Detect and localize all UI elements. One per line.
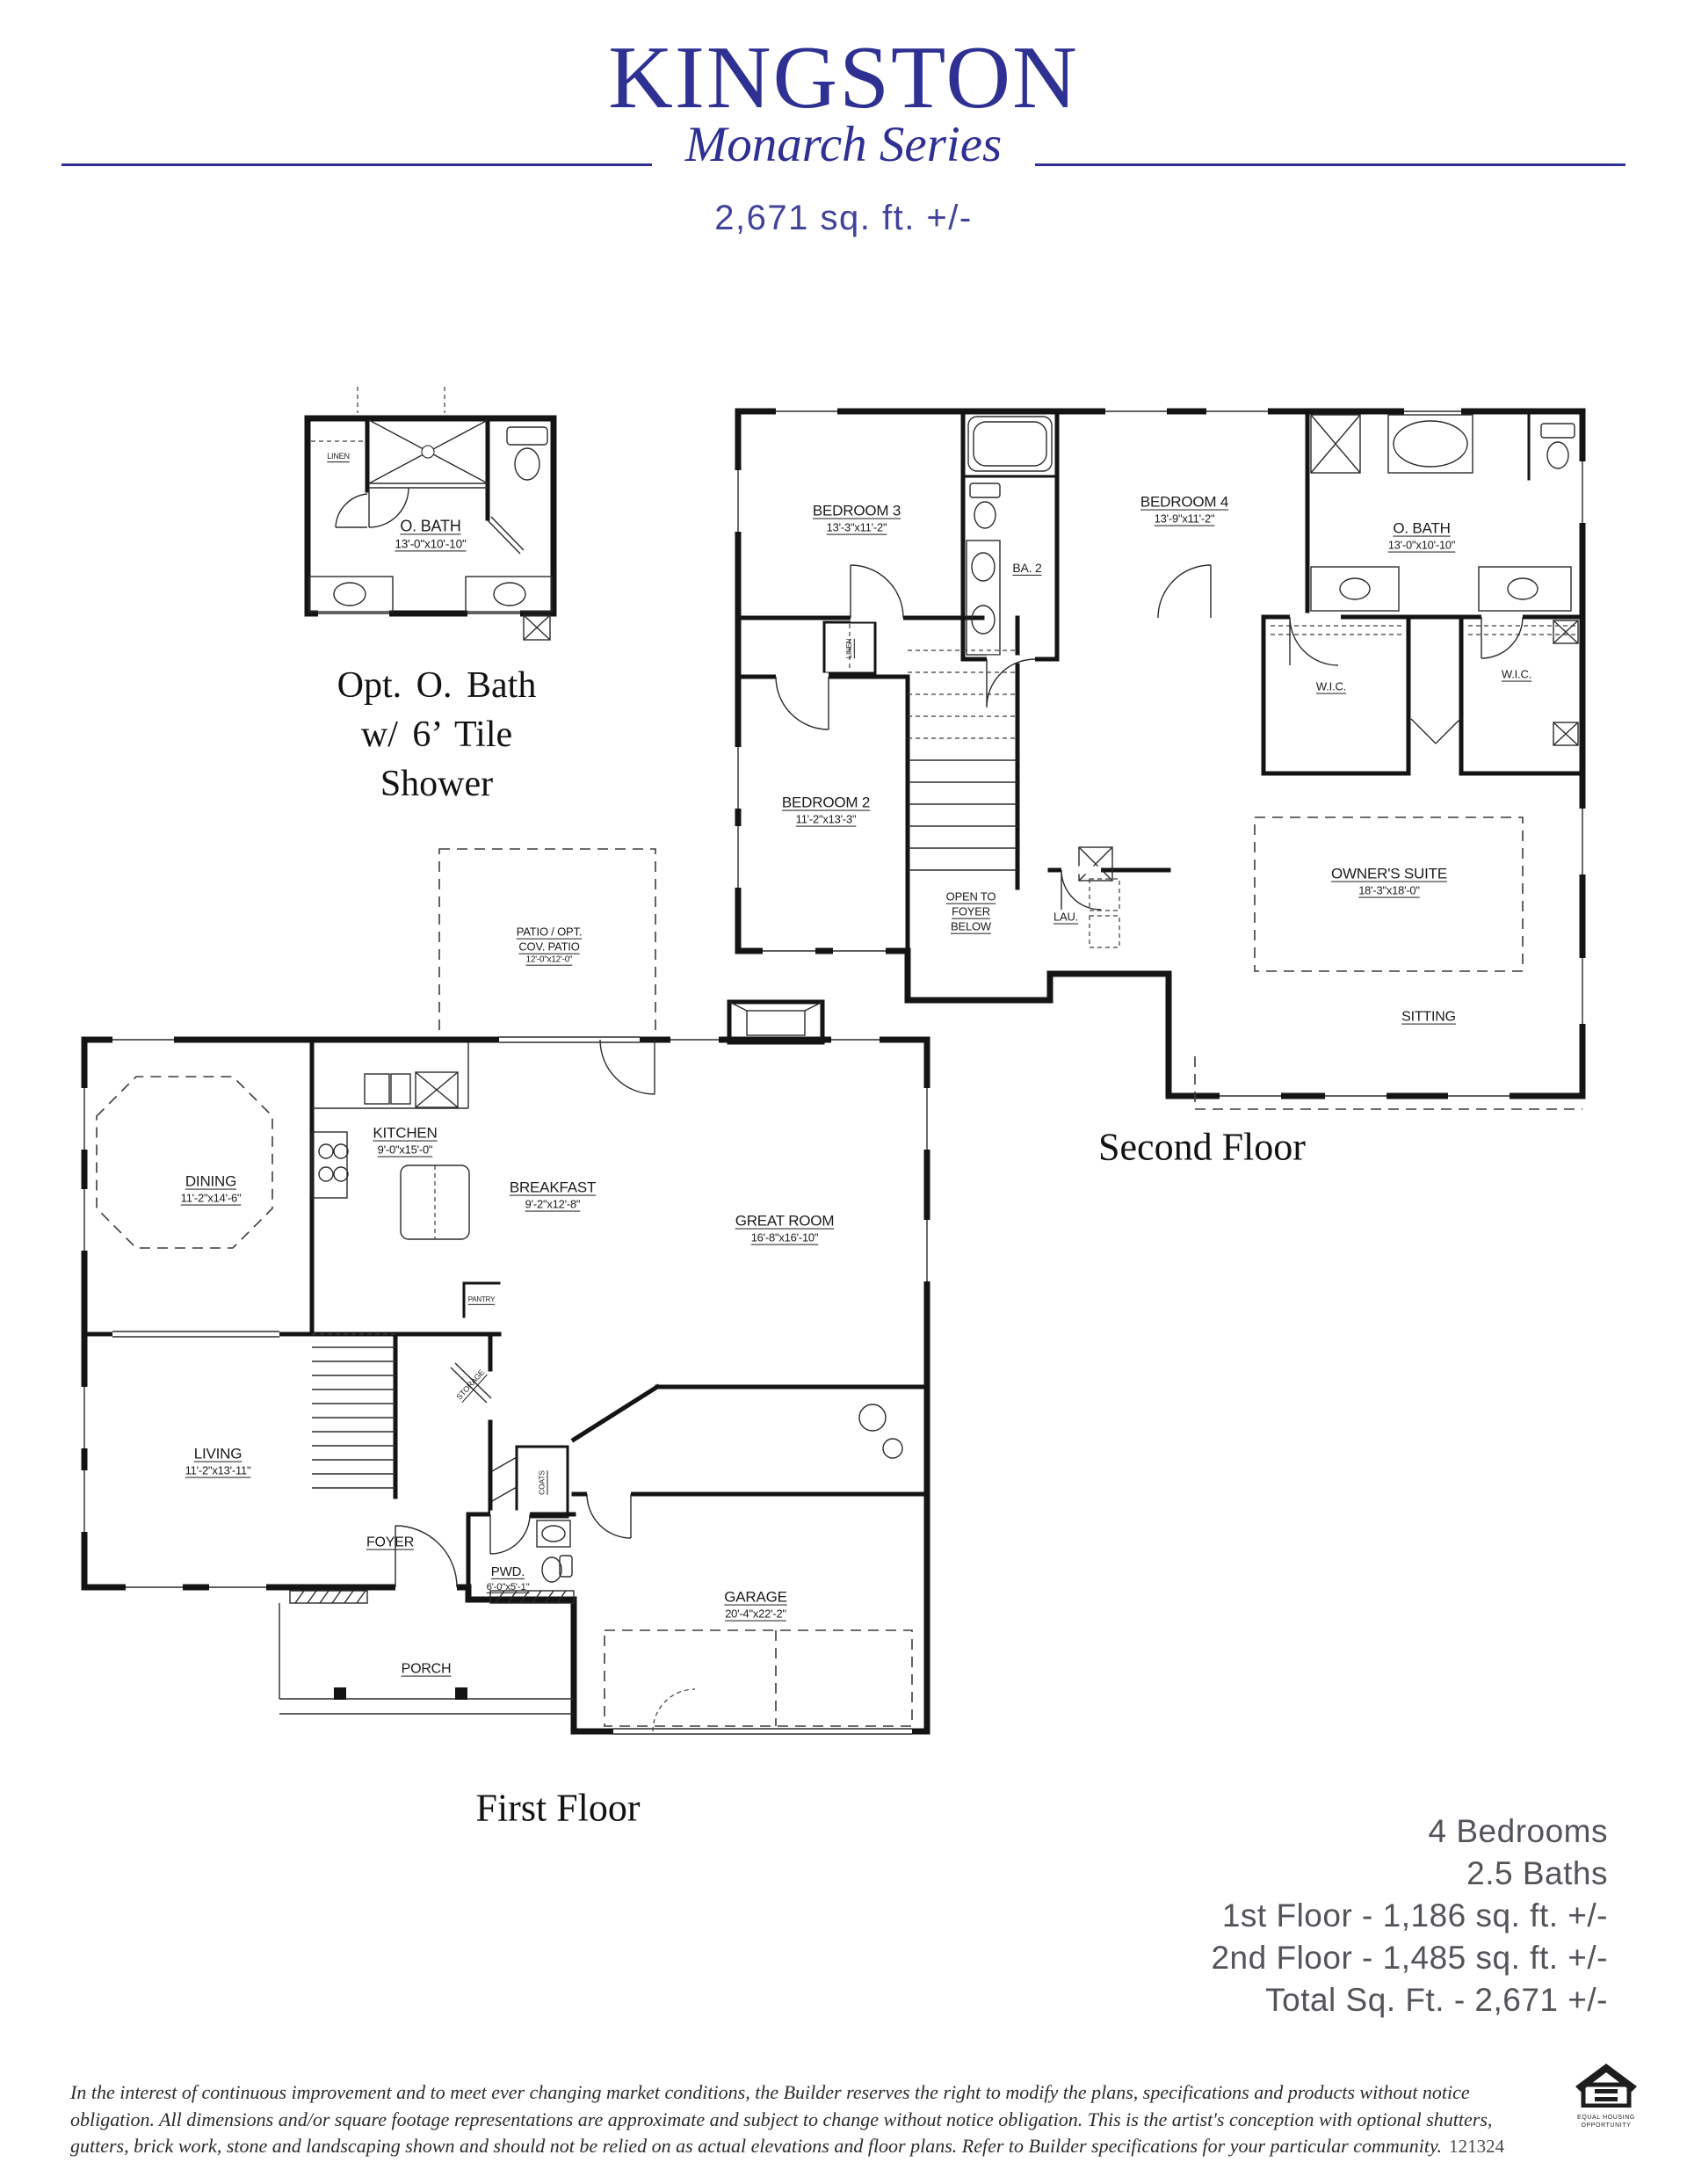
room-dims: 18'-3"x18'-0" bbox=[1331, 884, 1447, 899]
attic-access-box bbox=[1079, 847, 1112, 881]
room-name: BEDROOM 4 bbox=[1140, 493, 1228, 512]
summary-total-sqft: Total Sq. Ft. - 2,671 +/- bbox=[1211, 1979, 1608, 2021]
second-floor-caption: Second Floor bbox=[1098, 1125, 1306, 1170]
tile-shower bbox=[369, 420, 488, 488]
room-dims: 16'-8"x16'-10" bbox=[735, 1231, 835, 1246]
equal-housing-logo: EQUAL HOUSING OPPORTUNITY bbox=[1571, 2062, 1641, 2130]
room-label-owners-suite: OWNER'S SUITE 18'-3"x18'-0" bbox=[1331, 865, 1447, 899]
fireplace bbox=[729, 1002, 822, 1042]
room-label-bedroom-2: BEDROOM 2 11'-2"x13'-3" bbox=[782, 794, 870, 828]
caption-line: Opt. O. Bath bbox=[305, 661, 568, 710]
room-label-linen: LINEN bbox=[845, 639, 854, 659]
room-dims: 20'-4"x22'-2" bbox=[724, 1607, 787, 1622]
room-name: GREAT ROOM bbox=[735, 1212, 835, 1231]
vanities bbox=[309, 577, 552, 612]
caption-line: Shower bbox=[305, 759, 568, 809]
room-dims: 13'-0"x10'-10" bbox=[395, 537, 466, 553]
room-label-powder: PWD. 6'-0"x5'-1" bbox=[487, 1564, 530, 1593]
room-name: PWD. bbox=[487, 1564, 530, 1581]
room-label-open-to-foyer: OPEN TO FOYER BELOW bbox=[946, 890, 996, 935]
room-name: SITTING bbox=[1401, 1009, 1456, 1027]
room-name: PANTRY bbox=[468, 1295, 496, 1304]
room-name: DINING bbox=[181, 1172, 242, 1192]
room-label-linen: LINEN bbox=[327, 452, 350, 462]
patio-slider-door bbox=[499, 1037, 655, 1094]
equal-housing-line1: EQUAL HOUSING bbox=[1571, 2114, 1641, 2122]
room-name: BA. 2 bbox=[1012, 560, 1041, 576]
total-sqft-headline: 2,671 sq. ft. +/- bbox=[0, 199, 1687, 238]
projection-lines bbox=[358, 387, 445, 413]
room-label-wic-left: W.I.C. bbox=[1316, 680, 1346, 695]
porch bbox=[279, 1591, 574, 1714]
toilet bbox=[507, 427, 547, 480]
label-line: OPEN TO bbox=[946, 890, 996, 905]
room-dims: 9'-0"x15'-0" bbox=[373, 1143, 437, 1158]
page-title: KINGSTON bbox=[0, 26, 1687, 129]
room-dims: 11'-2"x13'-11" bbox=[185, 1464, 251, 1479]
room-name: COATS bbox=[537, 1470, 547, 1495]
wic-shelving bbox=[1271, 626, 1576, 635]
roofline-dashed bbox=[1195, 1056, 1582, 1109]
room-label-sitting: SITTING bbox=[1401, 1009, 1456, 1027]
room-label-obath: O. BATH 13'-0"x10'-10" bbox=[395, 516, 466, 552]
room-dims: 12'-0"x12'-0" bbox=[517, 954, 582, 966]
legal-disclaimer: In the interest of continuous improvemen… bbox=[70, 2079, 1533, 2160]
doors bbox=[395, 1494, 695, 1731]
room-dims: 11'-2"x13'-3" bbox=[782, 813, 870, 828]
room-name: OWNER'S SUITE bbox=[1331, 865, 1447, 884]
summary-second-floor-sqft: 2nd Floor - 1,485 sq. ft. +/- bbox=[1211, 1937, 1608, 1979]
room-label-bedroom-4: BEDROOM 4 13'-9"x11'-2" bbox=[1140, 493, 1228, 527]
powder-room-fixtures bbox=[537, 1520, 572, 1582]
room-name: KITCHEN bbox=[373, 1124, 437, 1143]
label-line: FOYER bbox=[946, 905, 996, 920]
label-line: BELOW bbox=[946, 919, 996, 934]
series-subtitle: Monarch Series bbox=[0, 116, 1687, 173]
cased-opening bbox=[112, 1331, 279, 1337]
room-label-bedroom-3: BEDROOM 3 13'-3"x11'-2" bbox=[813, 502, 901, 536]
dining-ceiling-dashed bbox=[97, 1077, 272, 1248]
equal-housing-line2: OPPORTUNITY bbox=[1571, 2122, 1641, 2130]
room-name: LIVING bbox=[185, 1445, 251, 1464]
room-label-patio: PATIO / OPT. COV. PATIO 12'-0"x12'-0" bbox=[517, 925, 582, 967]
room-dims: 9'-2"x12'-8" bbox=[510, 1198, 596, 1213]
room-name: LINEN bbox=[845, 639, 854, 659]
garage-bay-dashed bbox=[605, 1630, 912, 1726]
summary-first-floor-sqft: 1st Floor - 1,186 sq. ft. +/- bbox=[1211, 1895, 1608, 1937]
floorplan-opt-bath: LINEN O. BATH 13'-0"x10'-10" bbox=[299, 387, 562, 650]
room-label-coats: COATS bbox=[537, 1470, 547, 1495]
disclaimer-text: In the interest of continuous improvemen… bbox=[70, 2081, 1492, 2157]
caption-line: w/ 6’ Tile bbox=[305, 710, 568, 759]
room-name: W.I.C. bbox=[1502, 668, 1531, 683]
room-name: PORCH bbox=[402, 1661, 452, 1680]
summary-baths: 2.5 Baths bbox=[1211, 1853, 1608, 1895]
room-label-laundry: LAU. bbox=[1053, 911, 1078, 925]
room-label-ba2: BA. 2 bbox=[1012, 560, 1041, 576]
floorplan-first-floor: PATIO / OPT. COV. PATIO 12'-0"x12'-0" DI… bbox=[77, 842, 934, 1774]
room-label-dining: DINING 11'-2"x14'-6" bbox=[181, 1172, 242, 1207]
laundry-machines bbox=[1090, 879, 1119, 947]
first-floor-caption: First Floor bbox=[475, 1786, 640, 1831]
garage-door-opening bbox=[613, 1729, 912, 1734]
room-dims: 13'-3"x11'-2" bbox=[813, 521, 901, 536]
room-name: W.I.C. bbox=[1316, 680, 1346, 695]
room-name: BEDROOM 2 bbox=[782, 794, 870, 813]
room-label-wic-right: W.I.C. bbox=[1502, 668, 1531, 683]
floorplan-sheet: KINGSTON Monarch Series 2,671 sq. ft. +/… bbox=[0, 0, 1687, 2184]
summary-bedrooms: 4 Bedrooms bbox=[1211, 1810, 1608, 1853]
equal-housing-house-icon bbox=[1572, 2062, 1640, 2108]
interior-walls bbox=[84, 1040, 927, 1587]
windows bbox=[84, 1040, 927, 1587]
room-name: BREAKFAST bbox=[510, 1179, 596, 1198]
equal-housing-text: EQUAL HOUSING OPPORTUNITY bbox=[1571, 2114, 1641, 2130]
plan-summary: 4 Bedrooms 2.5 Baths 1st Floor - 1,186 s… bbox=[1211, 1810, 1608, 2021]
room-name: GARAGE bbox=[724, 1588, 787, 1607]
utility-circles bbox=[859, 1404, 902, 1458]
room-dims: 13'-0"x10'-10" bbox=[1388, 539, 1456, 554]
room-name: O. BATH bbox=[395, 516, 466, 536]
room-name: BEDROOM 3 bbox=[813, 502, 901, 521]
room-label-garage: GARAGE 20'-4"x22'-2" bbox=[724, 1588, 787, 1622]
room-name: O. BATH bbox=[1388, 519, 1456, 539]
room-label-porch: PORCH bbox=[402, 1661, 452, 1680]
room-label-living: LIVING 11'-2"x13'-11" bbox=[185, 1445, 251, 1479]
room-label-breakfast: BREAKFAST 9'-2"x12'-8" bbox=[510, 1179, 596, 1213]
room-name: LINEN bbox=[327, 452, 350, 462]
label-line: COV. PATIO bbox=[517, 940, 582, 955]
chase-box bbox=[524, 615, 550, 640]
coats-closet bbox=[492, 1447, 568, 1517]
room-label-pantry: PANTRY bbox=[468, 1295, 496, 1304]
stairs bbox=[312, 1334, 395, 1488]
room-name: FOYER bbox=[366, 1535, 414, 1553]
room-label-great-room: GREAT ROOM 16'-8"x16'-10" bbox=[735, 1212, 835, 1246]
stairs bbox=[908, 650, 1017, 870]
plan-revision-code: 121324 bbox=[1449, 2136, 1504, 2157]
room-dims: 13'-9"x11'-2" bbox=[1140, 512, 1228, 527]
room-name: LAU. bbox=[1053, 911, 1078, 925]
opt-bath-caption: Opt. O. Bath w/ 6’ Tile Shower bbox=[305, 661, 568, 809]
room-dims: 11'-2"x14'-6" bbox=[181, 1192, 242, 1207]
room-label-owners-bath: O. BATH 13'-0"x10'-10" bbox=[1388, 519, 1456, 554]
room-dims: 6'-0"x5'-1" bbox=[487, 1580, 530, 1593]
room-label-kitchen: KITCHEN 9'-0"x15'-0" bbox=[373, 1124, 437, 1158]
first-floor-drawing bbox=[77, 842, 934, 1774]
owners-bath-fixtures bbox=[1311, 415, 1578, 745]
room-label-foyer: FOYER bbox=[366, 1535, 414, 1553]
label-line: PATIO / OPT. bbox=[517, 925, 582, 940]
